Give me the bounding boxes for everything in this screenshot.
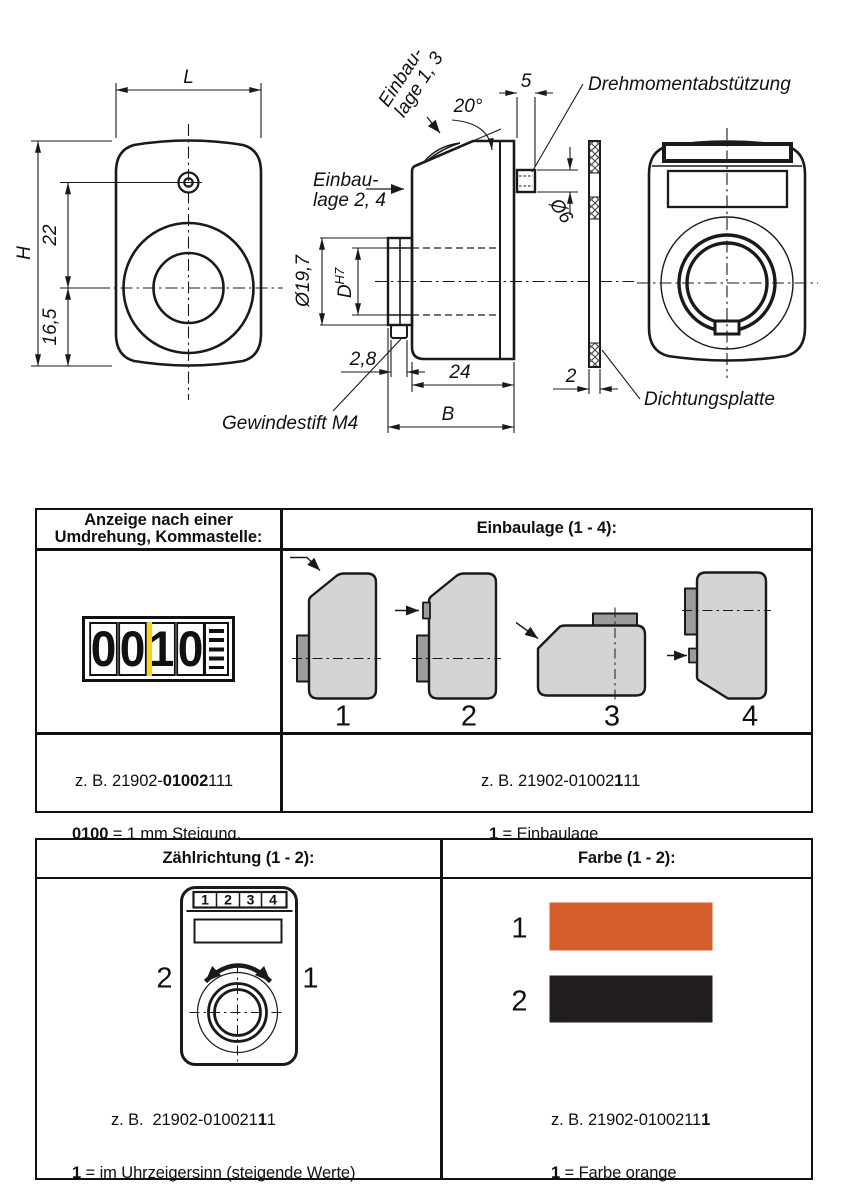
dial-digit: 1 bbox=[201, 892, 209, 908]
dial-digit: 4 bbox=[269, 892, 277, 908]
swatch-schwarz bbox=[550, 976, 713, 1023]
position-number-2: 2 bbox=[461, 701, 477, 733]
einbaulage-positions-graphic: 1 2 3 4 bbox=[282, 551, 809, 733]
label-einbaulage-1-3: Einbau- lage 1, 3 bbox=[375, 38, 448, 121]
dim-angle-20: 20° bbox=[453, 96, 483, 117]
dim-L: L bbox=[183, 67, 194, 88]
dim-24: 24 bbox=[448, 362, 470, 383]
torque-pin bbox=[517, 170, 535, 192]
counter-digit: 0 bbox=[176, 622, 205, 676]
table-anzeige-einbaulage: Anzeige nach einer Umdrehung, Kommastell… bbox=[35, 508, 813, 813]
swatch-label-2: 2 bbox=[511, 986, 527, 1018]
direction-label-ccw: 2 bbox=[156, 963, 172, 995]
einbaulage-position-3 bbox=[516, 608, 645, 702]
dim-shaft-dia: Ø19,7 bbox=[293, 254, 314, 308]
dim-seal-thickness: 2 bbox=[565, 366, 577, 387]
farbe-graphic: 1 2 bbox=[443, 879, 813, 1077]
counter-digit: 0 bbox=[118, 622, 147, 676]
side-body bbox=[412, 141, 514, 359]
dim-pin-dia: Ø6 bbox=[544, 194, 577, 228]
swatch-orange bbox=[550, 903, 713, 951]
dial-digit: 2 bbox=[224, 892, 232, 908]
dial-digit: 3 bbox=[247, 892, 255, 908]
header-anzeige: Anzeige nach einer Umdrehung, Kommastell… bbox=[37, 510, 280, 548]
dim-B: B bbox=[442, 404, 455, 425]
back-view bbox=[637, 128, 818, 378]
label-drehmomentabstuetzung: Drehmomentabstützung bbox=[588, 74, 791, 95]
seal-plate-view bbox=[553, 141, 640, 399]
svg-text:lage 2, 4: lage 2, 4 bbox=[313, 190, 386, 211]
table-zaehlrichtung-farbe: Zählrichtung (1 - 2): Farbe (1 - 2): bbox=[35, 838, 813, 1180]
counter-display: 0 0 1 0 bbox=[37, 551, 280, 732]
front-view bbox=[31, 83, 283, 400]
position-number-1: 1 bbox=[335, 701, 351, 733]
header-einbaulage: Einbaulage (1 - 4): bbox=[283, 510, 812, 548]
dim-5: 5 bbox=[521, 71, 532, 92]
header-farbe: Farbe (1 - 2): bbox=[443, 840, 812, 877]
side-setscrew bbox=[391, 325, 407, 338]
comma-marker bbox=[147, 622, 152, 676]
technical-drawing: L H 22 16,5 bbox=[0, 0, 848, 500]
dim-bore: DH7 bbox=[332, 267, 356, 298]
svg-text:Einbau-: Einbau- bbox=[313, 170, 379, 191]
zaehlrichtung-graphic: 1 2 3 4 2 1 bbox=[37, 879, 440, 1077]
counter-wheel-stripes bbox=[204, 622, 229, 676]
dim-H: H bbox=[14, 246, 35, 260]
catalog-drawing-page: L H 22 16,5 bbox=[0, 0, 848, 1200]
einbaulage-position-4 bbox=[667, 573, 771, 699]
legend-farbe: z. B. 21902-01002111 1 = Farbe orange 2 … bbox=[443, 1077, 813, 1200]
header-zaehlrichtung: Zählrichtung (1 - 2): bbox=[37, 840, 440, 877]
direction-label-cw: 1 bbox=[302, 963, 318, 995]
dim-16-5: 16,5 bbox=[40, 308, 61, 345]
einbaulage-position-2 bbox=[395, 574, 501, 699]
position-number-4: 4 bbox=[742, 701, 758, 733]
counter-digit: 0 bbox=[89, 622, 118, 676]
label-gewindestift: Gewindestift M4 bbox=[222, 413, 358, 434]
label-dichtungsplatte: Dichtungsplatte bbox=[644, 389, 775, 410]
dim-2-8: 2,8 bbox=[349, 349, 377, 370]
einbaulage-position-1 bbox=[290, 558, 381, 699]
side-window-lens bbox=[424, 143, 460, 162]
label-einbaulage-2-4: Einbau- lage 2, 4 bbox=[313, 170, 386, 211]
side-view bbox=[320, 84, 634, 433]
legend-zaehlrichtung: z. B. 21902-01002111 1 = im Uhrzeigersin… bbox=[37, 1077, 440, 1200]
swatch-label-1: 1 bbox=[511, 913, 527, 945]
dim-22: 22 bbox=[40, 224, 61, 247]
position-number-3: 3 bbox=[604, 701, 620, 733]
